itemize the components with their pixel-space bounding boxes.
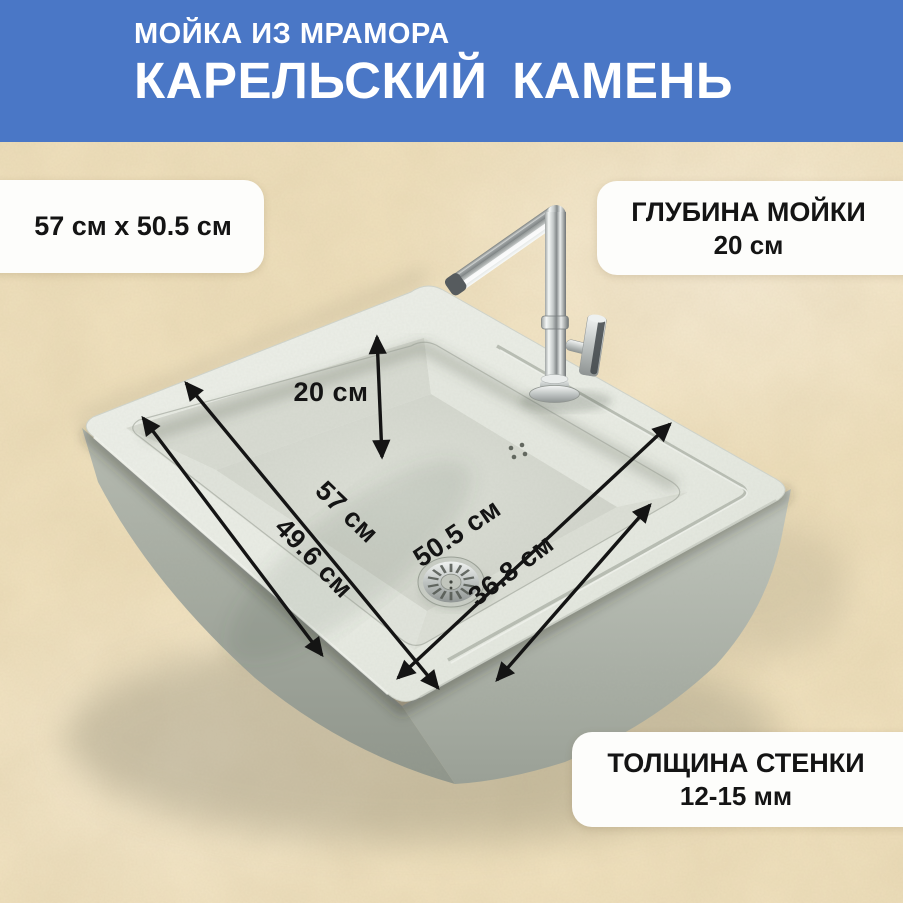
badge-depth-value: 20 см [714,229,812,262]
badge-wall-title: ТОЛЩИНА СТЕНКИ [607,746,892,780]
badge-depth-title: ГЛУБИНА МОЙКИ [631,195,893,229]
faucet-body [545,212,566,386]
faucet-base [530,386,580,403]
product-card: МОЙКА ИЗ МРАМОРА КАРЕЛЬСКИЙ КАМЕНЬ [0,0,903,903]
badge-size: 57 см x 50.5 см [0,180,264,273]
badge-size-value: 57 см x 50.5 см [4,211,232,242]
badge-depth: ГЛУБИНА МОЙКИ 20 см [597,181,903,275]
dimension-label-depth: 20 см [293,377,368,407]
badge-wall: ТОЛЩИНА СТЕНКИ 12-15 мм [572,732,903,827]
badge-wall-value: 12-15 мм [680,780,820,813]
